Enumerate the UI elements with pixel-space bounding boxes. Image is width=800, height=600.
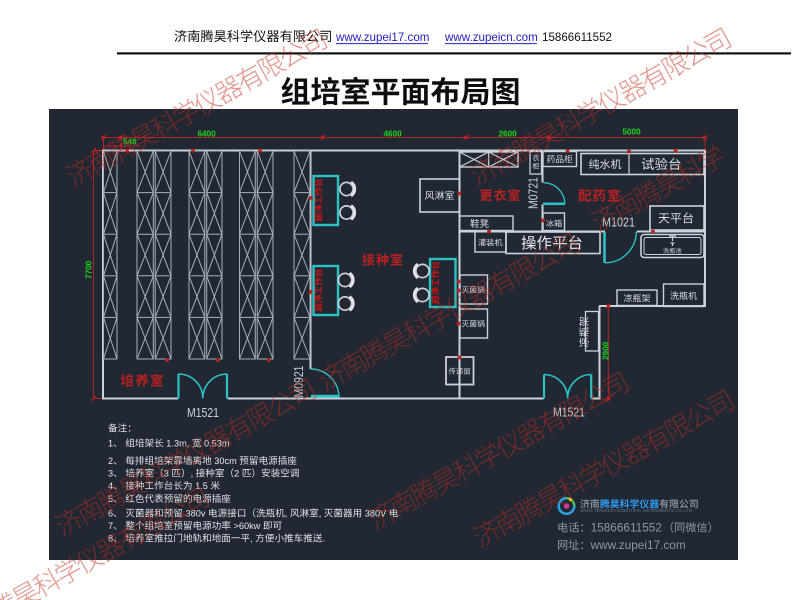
svg-text:>60kw: >60kw bbox=[234, 521, 261, 531]
svg-text:M0921: M0921 bbox=[291, 366, 306, 398]
svg-text:,: , bbox=[319, 509, 322, 519]
svg-text:4600: 4600 bbox=[384, 130, 403, 139]
svg-text:M1521: M1521 bbox=[187, 405, 219, 420]
svg-text:5000: 5000 bbox=[623, 128, 642, 137]
svg-text:www.zupei17.com: www.zupei17.com bbox=[335, 31, 429, 44]
svg-text:www.zupeicn.com: www.zupeicn.com bbox=[444, 31, 538, 44]
svg-text:2900: 2900 bbox=[602, 341, 611, 360]
svg-text:7: 7 bbox=[108, 521, 113, 531]
svg-text:3: 3 bbox=[108, 469, 113, 479]
svg-text:30cm: 30cm bbox=[214, 456, 237, 466]
svg-text:www.zupei17.com: www.zupei17.com bbox=[590, 538, 686, 552]
svg-text:2: 2 bbox=[234, 469, 239, 479]
svg-text:2600: 2600 bbox=[499, 130, 518, 139]
svg-text:JINAN TENGHAO SCIENTIFIC INSTR: JINAN TENGHAO SCIENTIFIC INSTRUMENTS CO.… bbox=[580, 508, 694, 513]
svg-text:.: . bbox=[322, 534, 325, 544]
svg-text:15866611552: 15866611552 bbox=[542, 30, 612, 44]
svg-text:1.5: 1.5 bbox=[195, 481, 208, 491]
svg-text:,: , bbox=[191, 469, 194, 479]
svg-text:7700: 7700 bbox=[85, 260, 94, 279]
svg-text:1: 1 bbox=[108, 439, 113, 449]
svg-text:M1521: M1521 bbox=[553, 405, 585, 420]
svg-text:,: , bbox=[285, 509, 288, 519]
svg-text:15866611552: 15866611552 bbox=[591, 521, 662, 535]
svg-text:,: , bbox=[250, 534, 253, 544]
svg-text:M0721: M0721 bbox=[526, 177, 541, 209]
svg-text:2: 2 bbox=[108, 456, 113, 466]
svg-text:6400: 6400 bbox=[198, 130, 217, 139]
